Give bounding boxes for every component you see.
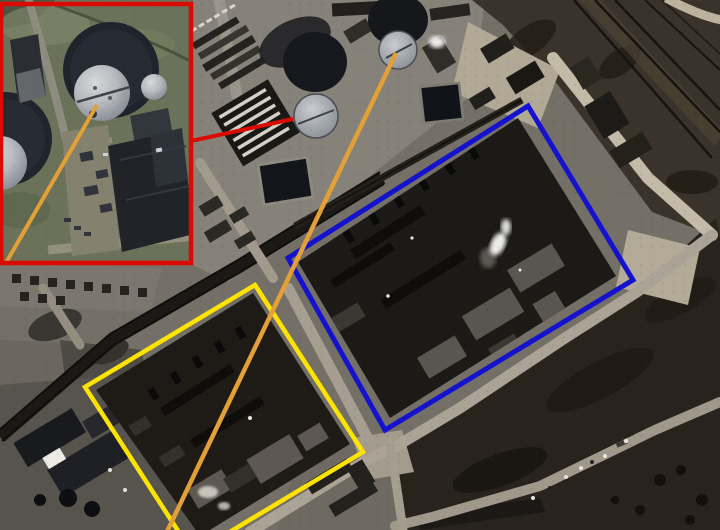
inset-magnified-view bbox=[0, 0, 195, 268]
satellite-image-view bbox=[0, 0, 720, 530]
satellite-image bbox=[0, 0, 720, 530]
